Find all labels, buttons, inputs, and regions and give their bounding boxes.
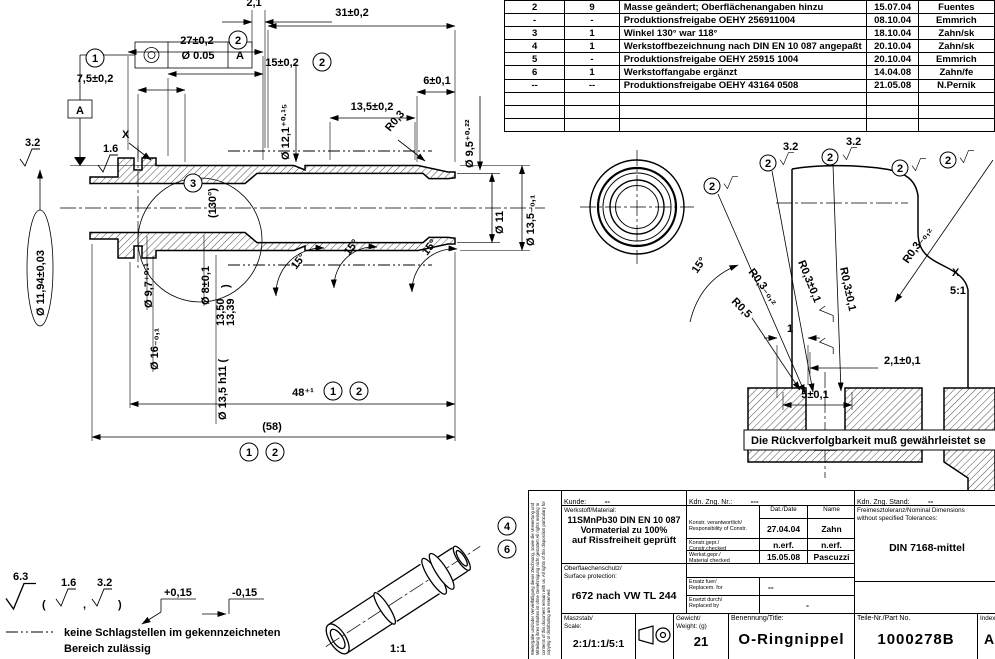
replacement-block: Ersatz fuer/ Replacem. for -- Ersetzt du… [686, 563, 854, 613]
count-cell: 1 [565, 66, 620, 79]
engineering-drawing-sheet: Ø 0.05 A A 2,1 31±0,2 27±0,2 2 15±0,2 2 … [0, 0, 995, 659]
sf-32-label: 3.2 [783, 141, 798, 153]
balloon-2-label: 2 [709, 181, 715, 193]
surface-finish-note: 6.3 ( 1.6 , 3.2 ) [6, 571, 122, 611]
tolerance-label1: Freimesztoleranz/Nominal Dimensions [855, 506, 995, 515]
customer-dwg-state-value: -- [928, 497, 933, 505]
surface-protection-value: r672 nach VW TL 244 [562, 590, 686, 602]
date-cell: 14.04.08 [867, 66, 918, 79]
dia-16-label: Ø 16₋₀,₁ [149, 327, 161, 370]
table-row: 2 9 Masse geändert; Oberflächenangaben h… [505, 1, 995, 14]
surface-finish-icon [820, 338, 834, 354]
dim-48-label: 48⁺¹ [292, 387, 314, 399]
paren-close: ) [118, 599, 122, 611]
empty-cell [854, 581, 995, 613]
table-row-empty [505, 105, 995, 118]
description-cell: Werkstoffbezeichnung nach DIN EN 10 087 … [619, 40, 867, 53]
count-cell: 9 [565, 1, 620, 14]
balloon-2-label: 2 [827, 152, 833, 164]
detail-dim-5-label: 5±0,1 [801, 389, 828, 401]
customer-dwg-state-cell: Kdn. Zng. Stand: -- [854, 491, 995, 505]
title-block: Weitergabe und/oder Vervielfältigung die… [528, 490, 995, 659]
rev-cell: 4 [505, 40, 565, 53]
table-row-empty [505, 118, 995, 131]
name-cell: Emmrich [918, 14, 994, 27]
sf-32-label: 3.2 [846, 136, 861, 148]
h11-paren-label: ) [220, 284, 232, 288]
copyright-text: Weitergabe und/oder Vervielfältigung die… [530, 491, 560, 655]
material-label: Werkstoff/Material: [562, 506, 686, 515]
edge-condition-note: +0,15 -0,15 [142, 587, 264, 624]
surface-finish-icon [20, 149, 40, 166]
balloon-2-label: 2 [272, 447, 278, 459]
detail-view-x: 2 2 3.2 2 3.2 2 2 R0,3₋₀,₂ R0,3±0,1 R0,3… [690, 136, 995, 525]
date-cell: 08.10.04 [867, 14, 918, 27]
dim-27-label: 27±0,2 [180, 35, 214, 47]
constr-checked-label1: Konstr.gepr./ [687, 539, 759, 546]
dia-13-5-tol-label: Ø 13,5₋₀,₁ [525, 194, 537, 246]
description-cell: Produktionsfreigabe OEHY 256911004 [619, 14, 867, 27]
index-label: Index: [978, 614, 995, 623]
balloon-2-label: 2 [356, 386, 362, 398]
detail-r03-minus-label: R0,3₋₀,₂ [746, 266, 781, 307]
detail-dim-1-label: 1 [787, 323, 793, 335]
dim-13-5-label: 13,5±0,2 [351, 101, 394, 113]
count-cell: - [565, 53, 620, 66]
table-row-empty [505, 92, 995, 105]
dim-2-1-label: 2,1 [246, 0, 261, 9]
material-checked-name: Pascuzzi [807, 551, 854, 563]
surface-finish-icon [56, 589, 76, 606]
scale-label1: Maszstab/ [562, 614, 635, 623]
weight-cell: Gewicht/ Weight: (g) 21 [673, 613, 728, 659]
responsible-label2: Responsibility of Constr. [687, 526, 759, 532]
name-cell: Emmrich [918, 53, 994, 66]
tolerance-cell: Freimesztoleranz/Nominal Dimensions with… [854, 505, 995, 581]
table-row: 3 1 Winkel 130° war 118° 18.10.04 Zahn/s… [505, 27, 995, 40]
lower-wall-section [90, 233, 455, 259]
rev-cell: 3 [505, 27, 565, 40]
material-line1: 11SMnPb30 DIN EN 10 087 [562, 515, 686, 525]
balloon-2-label: 2 [897, 163, 903, 175]
material-line3: auf Rissfreiheit geprüft [562, 535, 686, 546]
detail-angle-15-label: 15° [690, 255, 709, 276]
material-cell: Werkstoff/Material: 11SMnPb30 DIN EN 10 … [561, 505, 686, 563]
dia-11-label: Ø 11 [494, 211, 506, 234]
balloon-1-label: 1 [330, 386, 336, 398]
customer-dwg-no-value: --- [751, 497, 759, 505]
name-cell: Zahn/sk [918, 40, 994, 53]
date-cell: 15.07.04 [867, 1, 918, 14]
angle-15-label: 15° [342, 237, 362, 258]
upper-wall-section [90, 158, 455, 184]
surface-finish-icon [6, 584, 36, 610]
name-cell: Zahn/sk [918, 27, 994, 40]
traceability-note: Die Rückverfolgbarkeit muß gewährleistet… [744, 430, 995, 450]
weight-label1: Gewicht/ [674, 614, 728, 623]
customer-dwg-no-cell: Kdn. Zng. Nr.: --- [686, 491, 854, 505]
revision-table: 2 9 Masse geändert; Oberflächenangaben h… [504, 0, 995, 132]
dim-15-label: 15±0,2 [265, 57, 299, 69]
dim-31-label: 31±0,2 [335, 7, 369, 19]
isometric-view: 1:1 4 6 [314, 517, 516, 659]
balloon-2-label: 2 [945, 155, 951, 167]
angle-15-label: 15° [289, 251, 309, 272]
detail-dim-2-1-label: 2,1±0,1 [884, 355, 921, 367]
replaces-value: -- [759, 577, 854, 595]
replaced-by-label-cell: Ersetzt durch/ Replaced by [687, 595, 759, 613]
approval-grid: Dat./Date Name Konstr. verantwortlich/ R… [686, 505, 854, 563]
table-row: 4 1 Werkstoffbezeichnung nach DIN EN 10 … [505, 40, 995, 53]
dia-8-label: Ø 8±0,1 [200, 266, 212, 305]
surface-finish-icon [843, 148, 857, 160]
rev-cell: 6 [505, 66, 565, 79]
datum-a-label: A [76, 105, 84, 117]
dim-58-label: (58) [262, 421, 282, 433]
replaces-label-cell: Ersatz fuer/ Replacem. for [687, 577, 759, 595]
description-cell: Masse geändert; Oberflächenangaben hinzu [619, 1, 867, 14]
rev-cell: 2 [505, 1, 565, 14]
datum-arrow [74, 157, 86, 166]
surface-finish-icon [724, 177, 738, 189]
replaced-by-value: - [759, 595, 854, 613]
date-header: Dat./Date [759, 506, 807, 519]
surface-protection-cell: Oberflaechenschutz/ Surface protection: … [561, 563, 686, 613]
index-cell: Index: A [977, 613, 995, 659]
dia-13-5-h11-label: Ø 13,5 h11 ( [217, 359, 229, 420]
end-view [580, 150, 694, 264]
traceability-text: Die Rückverfolgbarkeit muß gewährleistet… [751, 435, 986, 447]
detail-r03-pm-label: R0,3±0,1 [837, 266, 858, 312]
sf-16-label: 1.6 [61, 577, 76, 589]
dia-11-94-label: Ø 11,94±0,03 [35, 250, 47, 316]
customer-value: -- [605, 497, 610, 505]
name-cell: Zahn/fe [918, 66, 994, 79]
rev-cell: 5 [505, 53, 565, 66]
material-checked-label-cell: Werkst.gepr./ Material checked [687, 551, 759, 563]
part-no-label: Teile-Nr./Part No. [855, 614, 977, 623]
date-cell: 18.10.04 [867, 27, 918, 40]
surface-finish-icon [98, 155, 118, 172]
table-row: 6 1 Werkstoffangabe ergänzt 14.04.08 Zah… [505, 66, 995, 79]
responsible-date: 27.04.04 [759, 519, 807, 539]
balloon-4-label: 4 [504, 521, 511, 533]
table-row: - - Produktionsfreigabe OEHY 256911004 0… [505, 14, 995, 27]
count-cell: 1 [565, 40, 620, 53]
sf-16-label: 1.6 [103, 143, 118, 155]
sf-32-label: 3.2 [97, 577, 112, 589]
count-cell: 1 [565, 27, 620, 40]
description-cell: Produktionsfreigabe OEHY 43164 0508 [619, 79, 867, 92]
description-cell: Winkel 130° war 118° [619, 27, 867, 40]
name-header: Name [807, 506, 854, 519]
dia-9-5-label: Ø 9,5⁺⁰·²² [464, 119, 476, 168]
tolerance-value: DIN 7168-mittel [855, 542, 995, 554]
impact-note: keine Schlagstellen im gekennzeichneten … [6, 627, 281, 655]
responsible-label-cell: Konstr. verantwortlich/ Responsibility o… [687, 519, 759, 539]
rev-cell: -- [505, 79, 565, 92]
surface-protection-label1: Oberflaechenschutz/ [562, 564, 686, 573]
table-row: 5 - Produktionsfreigabe OEHY 25915 1004 … [505, 53, 995, 66]
constr-checked-date: n.erf. [759, 539, 807, 551]
detail-r03-pm-label: R0,3±0,1 [795, 259, 823, 305]
constr-checked-label-cell: Konstr.gepr./ Constr.checked [687, 539, 759, 551]
rev-cell: - [505, 14, 565, 27]
balloon-2-label: 2 [235, 35, 241, 47]
material-checked-label1: Werkst.gepr./ [687, 551, 759, 558]
balloon-3-label: 3 [190, 178, 196, 190]
concentricity-icon [144, 48, 159, 63]
surface-finish-icon [780, 153, 794, 165]
surface-finish-icon [912, 159, 926, 171]
replaced-by-label2: Replaced by [687, 603, 759, 609]
responsible-name: Zahn [807, 519, 854, 539]
description-cell: Werkstoffangabe ergänzt [619, 66, 867, 79]
title-cell: Benennung/Title: O-Ringnippel [728, 613, 854, 659]
scale-cell: Maszstab/ Scale: 2:1/1:1/5:1 [561, 613, 635, 659]
copyright-strip: Weitergabe und/oder Vervielfältigung die… [529, 491, 561, 659]
angle-130-label: (130°) [207, 188, 219, 218]
dim-6-label: 6±0,1 [423, 75, 450, 87]
name-cell: N.Pernik [918, 79, 994, 92]
responsible-label1: Konstr. verantwortlich/ [687, 519, 759, 526]
surface-protection-label2: Surface protection: [562, 573, 686, 581]
detail-r05-label: R0,5 [729, 296, 754, 321]
balloon-1-label: 1 [246, 447, 252, 459]
sf-32-label: 3.2 [25, 137, 40, 149]
table-row: -- -- Produktionsfreigabe OEHY 43164 050… [505, 79, 995, 92]
main-dimensions: 2,1 31±0,2 27±0,2 2 15±0,2 2 1 7,5±0,2 6… [20, 0, 537, 461]
main-section-view [60, 146, 545, 302]
weight-value: 21 [674, 634, 728, 649]
first-angle-projection-icon [636, 614, 672, 658]
scale-value: 2:1/1:1/5:1 [562, 638, 635, 650]
material-checked-date: 15.05.08 [759, 551, 807, 563]
material-line2: Vormaterial zu 100% [562, 525, 686, 535]
customer-cell: Kunde: -- [561, 491, 686, 505]
count-cell: -- [565, 79, 620, 92]
description-cell: Produktionsfreigabe OEHY 25915 1004 [619, 53, 867, 66]
part-no-value: 1000278B [855, 631, 977, 648]
balloon-6-label: 6 [504, 544, 510, 556]
detail-x-ref-label: X [122, 129, 130, 141]
sf-63-label: 6.3 [13, 571, 28, 583]
date-cell: 21.05.08 [867, 79, 918, 92]
balloon-2-label: 2 [765, 158, 771, 170]
scale-label2: Scale: [562, 623, 635, 631]
part-no-cell: Teile-Nr./Part No. 1000278B [854, 613, 977, 659]
balloon-2-label: 2 [319, 57, 325, 69]
edge-plus-label: +0,15 [164, 587, 192, 599]
name-cell: Fuentes [918, 1, 994, 14]
date-cell: 20.10.04 [867, 40, 918, 53]
projection-symbol-cell [635, 613, 673, 659]
paren-open: ( [42, 599, 46, 611]
edge-minus-label: -0,15 [232, 587, 257, 599]
title-label: Benennung/Title: [729, 614, 854, 623]
dim-7-5-label: 7,5±0,2 [77, 73, 114, 85]
impact-note-line1: keine Schlagstellen im gekennzeichneten [64, 627, 281, 639]
replaces-label1: Ersatz fuer/ [687, 578, 759, 585]
tolerance-label2: without specified Tolerances: [855, 515, 995, 523]
surface-finish-icon [960, 151, 974, 163]
comma: , [83, 599, 86, 611]
count-cell: - [565, 14, 620, 27]
iso-scale-label: 1:1 [390, 643, 406, 655]
index-value: A [978, 631, 995, 647]
title-value: O-Ringnippel [729, 631, 854, 648]
surface-finish-icon [820, 306, 834, 322]
detail-x-title: X [952, 267, 960, 279]
detail-x-scale: 5:1 [950, 285, 966, 297]
surface-finish-icon [92, 589, 112, 606]
impact-note-line2: Bereich zulässig [64, 643, 151, 655]
weight-label2: Weight: (g) [674, 623, 728, 631]
dia-12-1-label: Ø 12,1⁺⁰·¹⁵ [280, 104, 292, 160]
replaces-label2: Replacem. for [687, 585, 759, 591]
replaced-by-label1: Ersetzt durch/ [687, 596, 759, 603]
h11-min-label: 13,39 [225, 298, 237, 326]
balloon-1-label: 1 [92, 53, 98, 65]
constr-checked-name: n.erf. [807, 539, 854, 551]
date-cell: 20.10.04 [867, 53, 918, 66]
